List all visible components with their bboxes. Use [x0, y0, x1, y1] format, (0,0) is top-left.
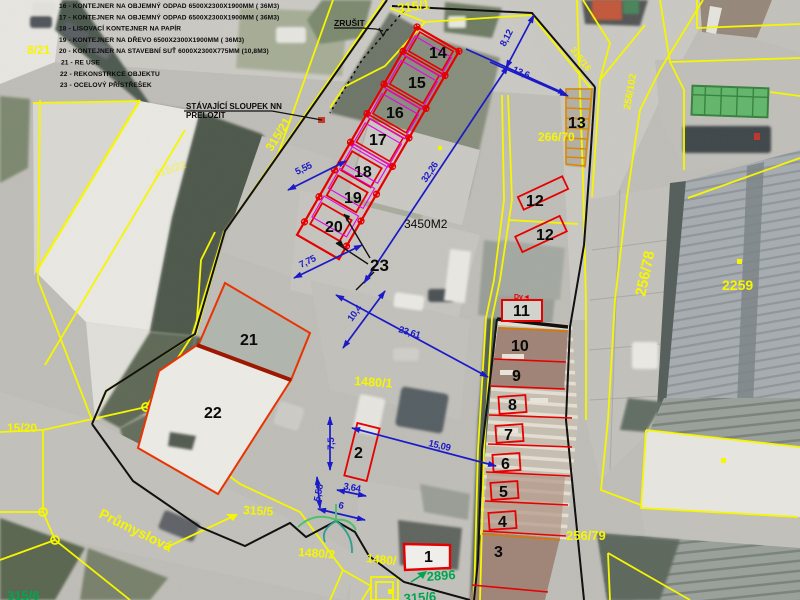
svg-text:2: 2 [354, 445, 363, 462]
svg-text:9: 9 [512, 368, 521, 385]
svg-text:STÁVAJÍCÍ SLOUPEK NN: STÁVAJÍCÍ SLOUPEK NN [186, 102, 282, 111]
svg-text:315/5: 315/5 [243, 503, 274, 519]
svg-text:10: 10 [511, 338, 529, 355]
svg-text:4: 4 [498, 514, 507, 531]
svg-text:12: 12 [536, 227, 554, 244]
svg-text:17 - KONTEJNER NA OBJEMNÝ ODPA: 17 - KONTEJNER NA OBJEMNÝ ODPAD 6500X230… [59, 12, 279, 21]
svg-text:6: 6 [501, 456, 510, 473]
svg-text:12: 12 [526, 193, 544, 210]
svg-text:16: 16 [386, 105, 404, 122]
svg-text:2896: 2896 [426, 567, 456, 584]
svg-text:8: 8 [508, 397, 517, 414]
svg-text:315/6: 315/6 [403, 589, 437, 600]
svg-text:PŘELOŽIT: PŘELOŽIT [186, 111, 226, 120]
svg-text:19 - KONTEJNER NA DŘEVO 6500X2: 19 - KONTEJNER NA DŘEVO 6500X2300X1900MM… [59, 35, 244, 44]
svg-text:Dv◄: Dv◄ [514, 294, 530, 301]
svg-text:21: 21 [240, 332, 258, 349]
svg-text:315/6: 315/6 [7, 588, 40, 600]
svg-text:17: 17 [369, 132, 387, 149]
svg-text:18: 18 [354, 164, 372, 181]
svg-text:18 - LISOVACÍ KONTEJNER NA PAP: 18 - LISOVACÍ KONTEJNER NA PAPÍR [59, 24, 181, 33]
svg-text:7,5: 7,5 [326, 437, 337, 450]
svg-text:22: 22 [204, 405, 222, 422]
svg-text:11: 11 [513, 303, 530, 320]
svg-text:15/20: 15/20 [7, 421, 37, 435]
svg-text:19: 19 [344, 190, 362, 207]
svg-text:23: 23 [370, 256, 389, 275]
svg-text:21 - RE USE: 21 - RE USE [61, 60, 100, 67]
svg-text:2259: 2259 [722, 277, 753, 293]
svg-text:20 - KONTEJNER NA STAVEBNÍ SUŤ: 20 - KONTEJNER NA STAVEBNÍ SUŤ 6000X2300… [59, 46, 269, 55]
svg-text:20: 20 [325, 219, 343, 236]
svg-text:3: 3 [494, 544, 503, 561]
svg-text:8/21: 8/21 [27, 43, 51, 57]
svg-text:5: 5 [499, 484, 508, 501]
svg-text:23 - OCELOVÝ PŘÍSTŘEŠEK: 23 - OCELOVÝ PŘÍSTŘEŠEK [60, 80, 152, 89]
svg-text:1: 1 [424, 549, 433, 566]
svg-text:15: 15 [408, 75, 426, 92]
svg-text:22 - REKONSTRKCE OBJEKTU: 22 - REKONSTRKCE OBJEKTU [60, 71, 160, 78]
svg-text:3450M2: 3450M2 [404, 217, 448, 231]
svg-text:1480/2: 1480/2 [298, 545, 336, 562]
svg-text:7: 7 [504, 427, 513, 444]
svg-text:14: 14 [429, 45, 447, 62]
svg-text:16 - KONTEJNER NA OBJEMNÝ ODPA: 16 - KONTEJNER NA OBJEMNÝ ODPAD 6500X230… [59, 1, 279, 10]
svg-text:ZRUŠIT: ZRUŠIT [334, 17, 366, 28]
svg-text:266/70: 266/70 [538, 130, 575, 144]
svg-text:1480/1: 1480/1 [354, 374, 393, 391]
svg-text:256/79: 256/79 [566, 528, 606, 543]
